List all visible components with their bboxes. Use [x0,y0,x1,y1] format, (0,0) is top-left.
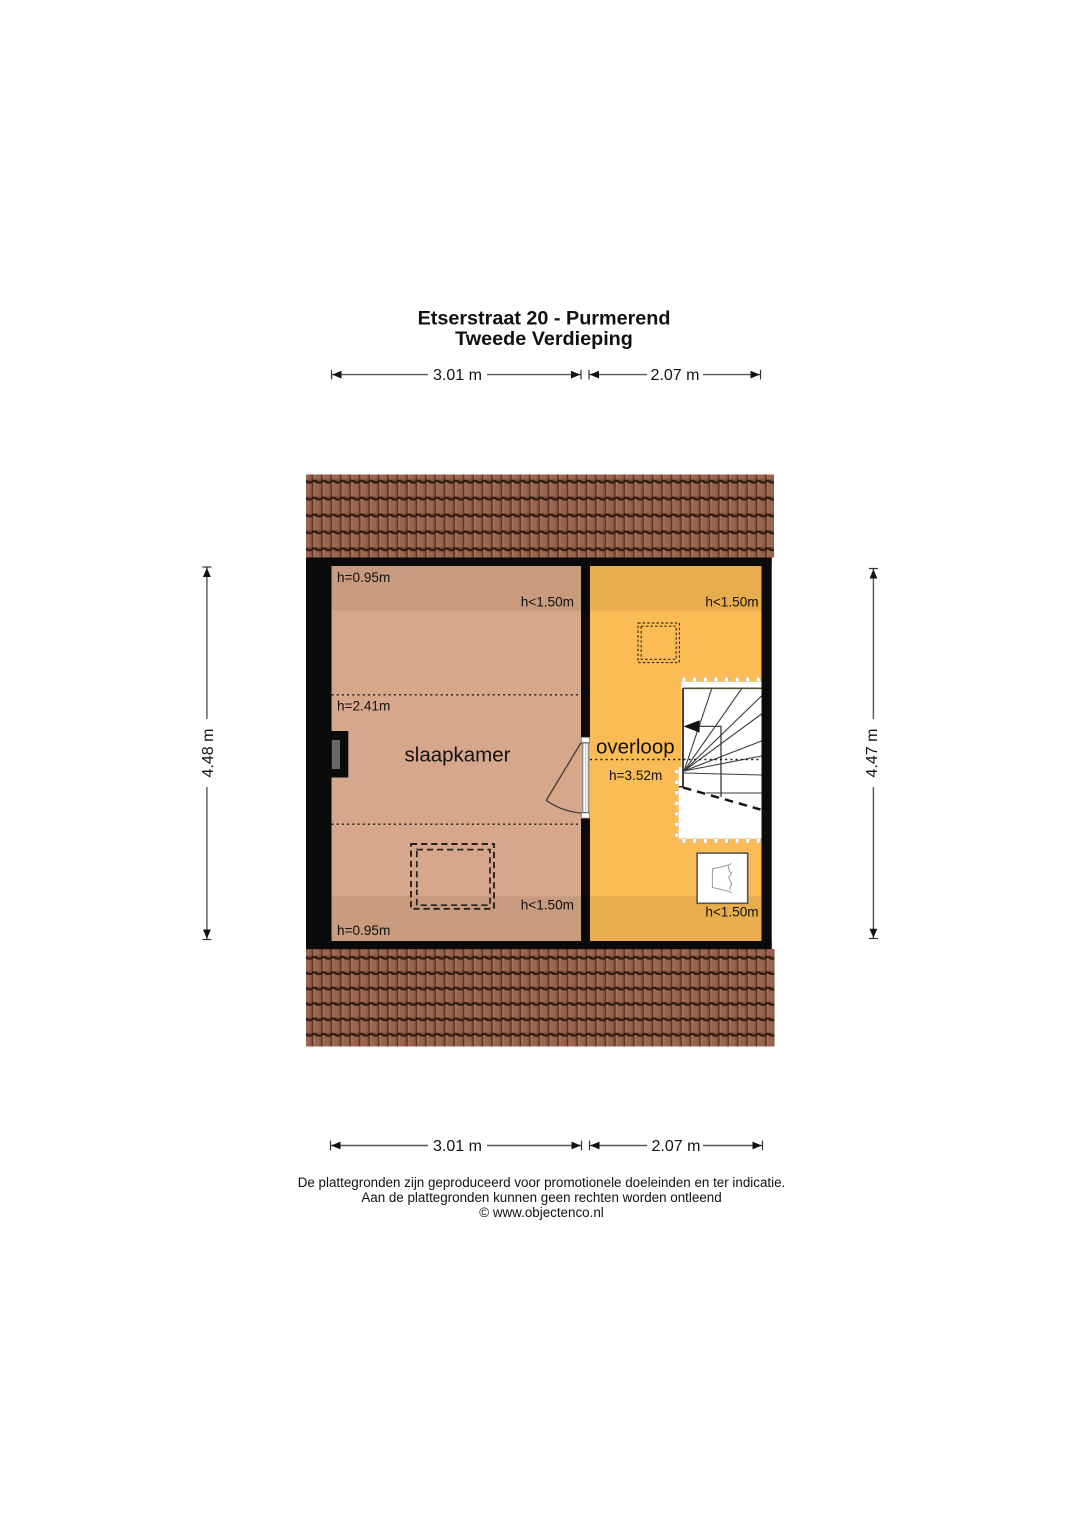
svg-text:h<1.50m: h<1.50m [521,595,574,610]
svg-text:2.07 m: 2.07 m [651,367,700,384]
svg-text:overloop: overloop [596,735,675,758]
svg-text:h<1.50m: h<1.50m [521,898,574,913]
svg-text:3.01 m: 3.01 m [433,1138,482,1155]
svg-text:h=3.52m: h=3.52m [609,768,662,783]
svg-text:h=2.41m: h=2.41m [337,699,390,714]
svg-text:3.01 m: 3.01 m [433,367,482,384]
svg-text:slaapkamer: slaapkamer [405,744,511,767]
svg-text:© www.objectenco.nl: © www.objectenco.nl [479,1205,604,1220]
svg-text:h=0.95m: h=0.95m [337,923,390,938]
svg-text:4.47 m: 4.47 m [864,729,881,778]
svg-text:h<1.50m: h<1.50m [705,905,758,920]
svg-text:Aan de plattegronden kunnen ge: Aan de plattegronden kunnen geen rechten… [361,1190,721,1205]
svg-text:De plattegronden zijn geproduc: De plattegronden zijn geproduceerd voor … [298,1175,786,1190]
svg-text:h=0.95m: h=0.95m [337,570,390,585]
svg-text:Tweede Verdieping: Tweede Verdieping [455,328,633,350]
svg-text:4.48 m: 4.48 m [200,729,217,778]
svg-text:h<1.50m: h<1.50m [705,595,758,610]
svg-text:Etserstraat 20 - Purmerend: Etserstraat 20 - Purmerend [418,308,671,330]
svg-text:2.07 m: 2.07 m [652,1138,701,1155]
